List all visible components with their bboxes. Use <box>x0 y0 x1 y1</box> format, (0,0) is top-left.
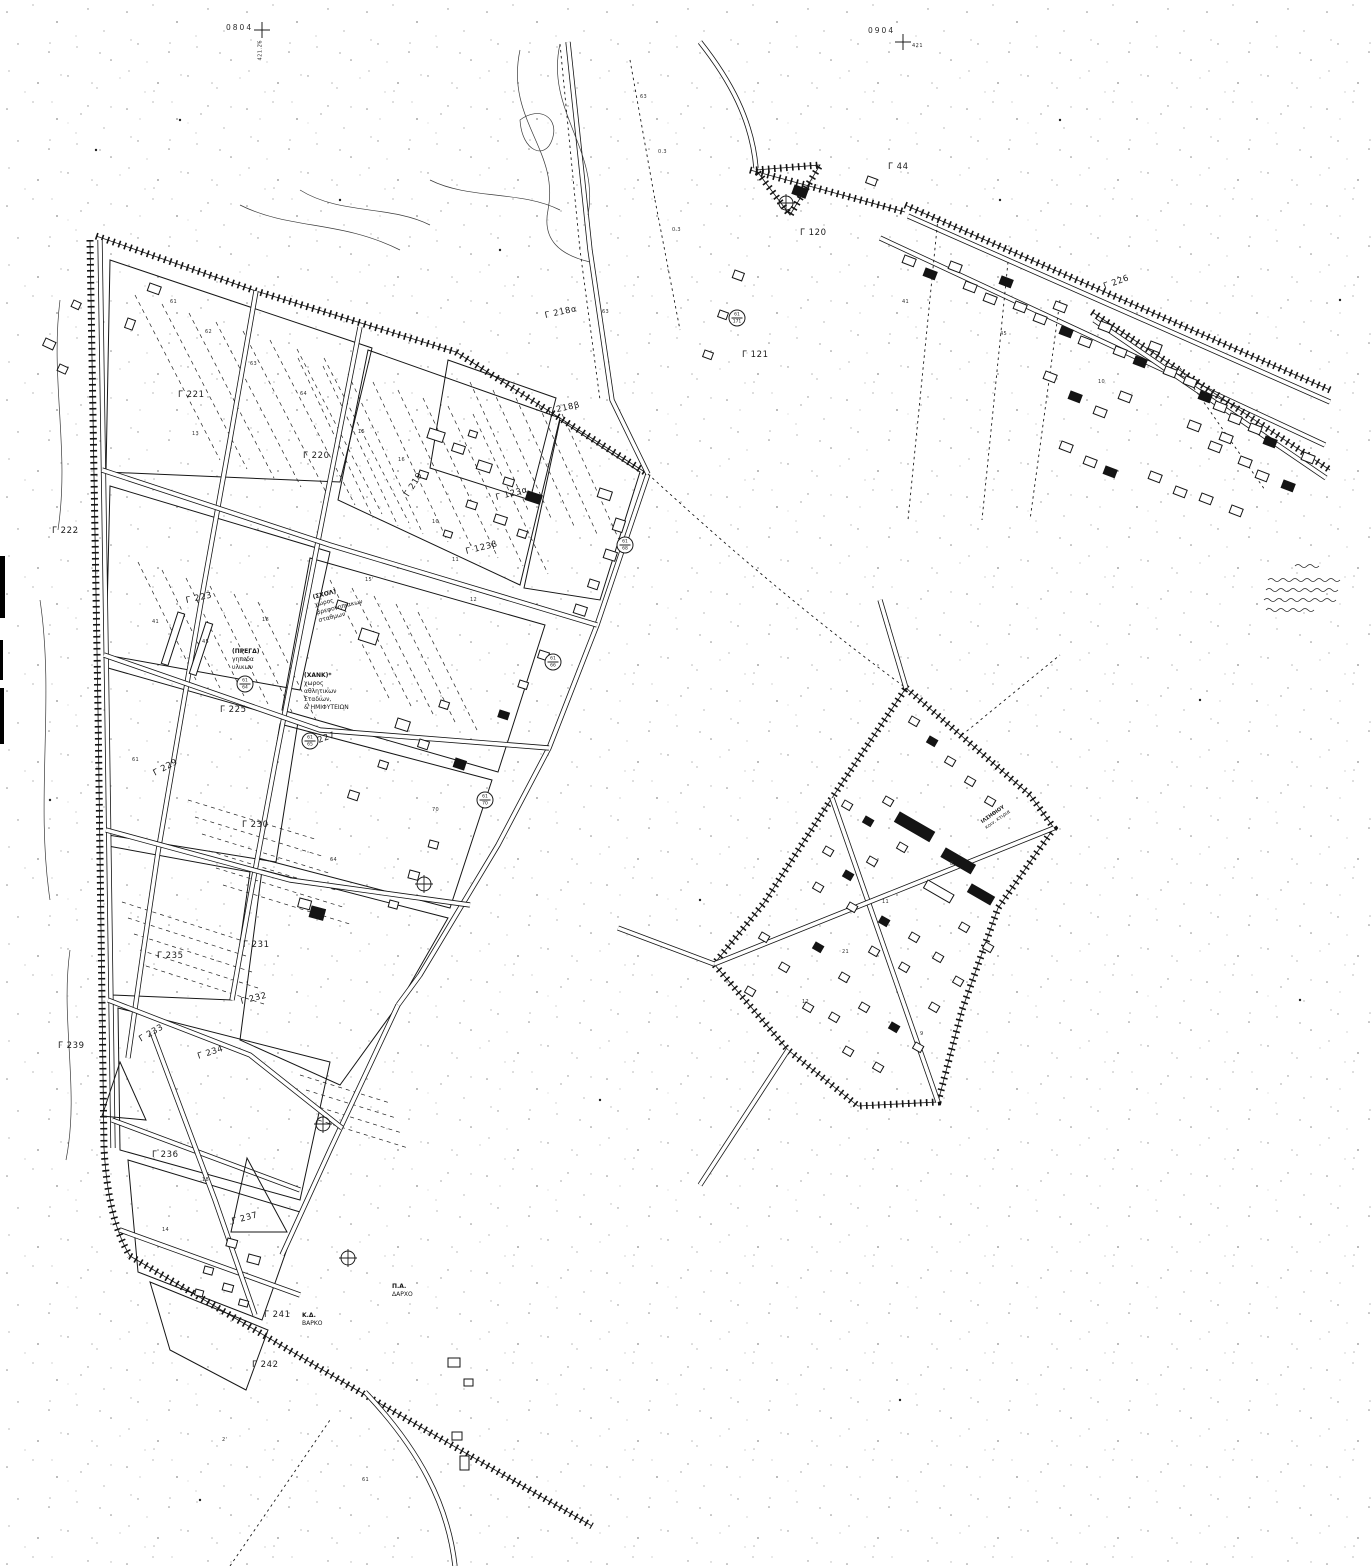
scan-noise-2 <box>43 31 1371 1566</box>
cadastral-map-sheet: 08040904421.26421Γ 221Γ 220Γ 222Γ 223Γ 2… <box>0 0 1371 1566</box>
map-canvas <box>0 0 1371 1566</box>
